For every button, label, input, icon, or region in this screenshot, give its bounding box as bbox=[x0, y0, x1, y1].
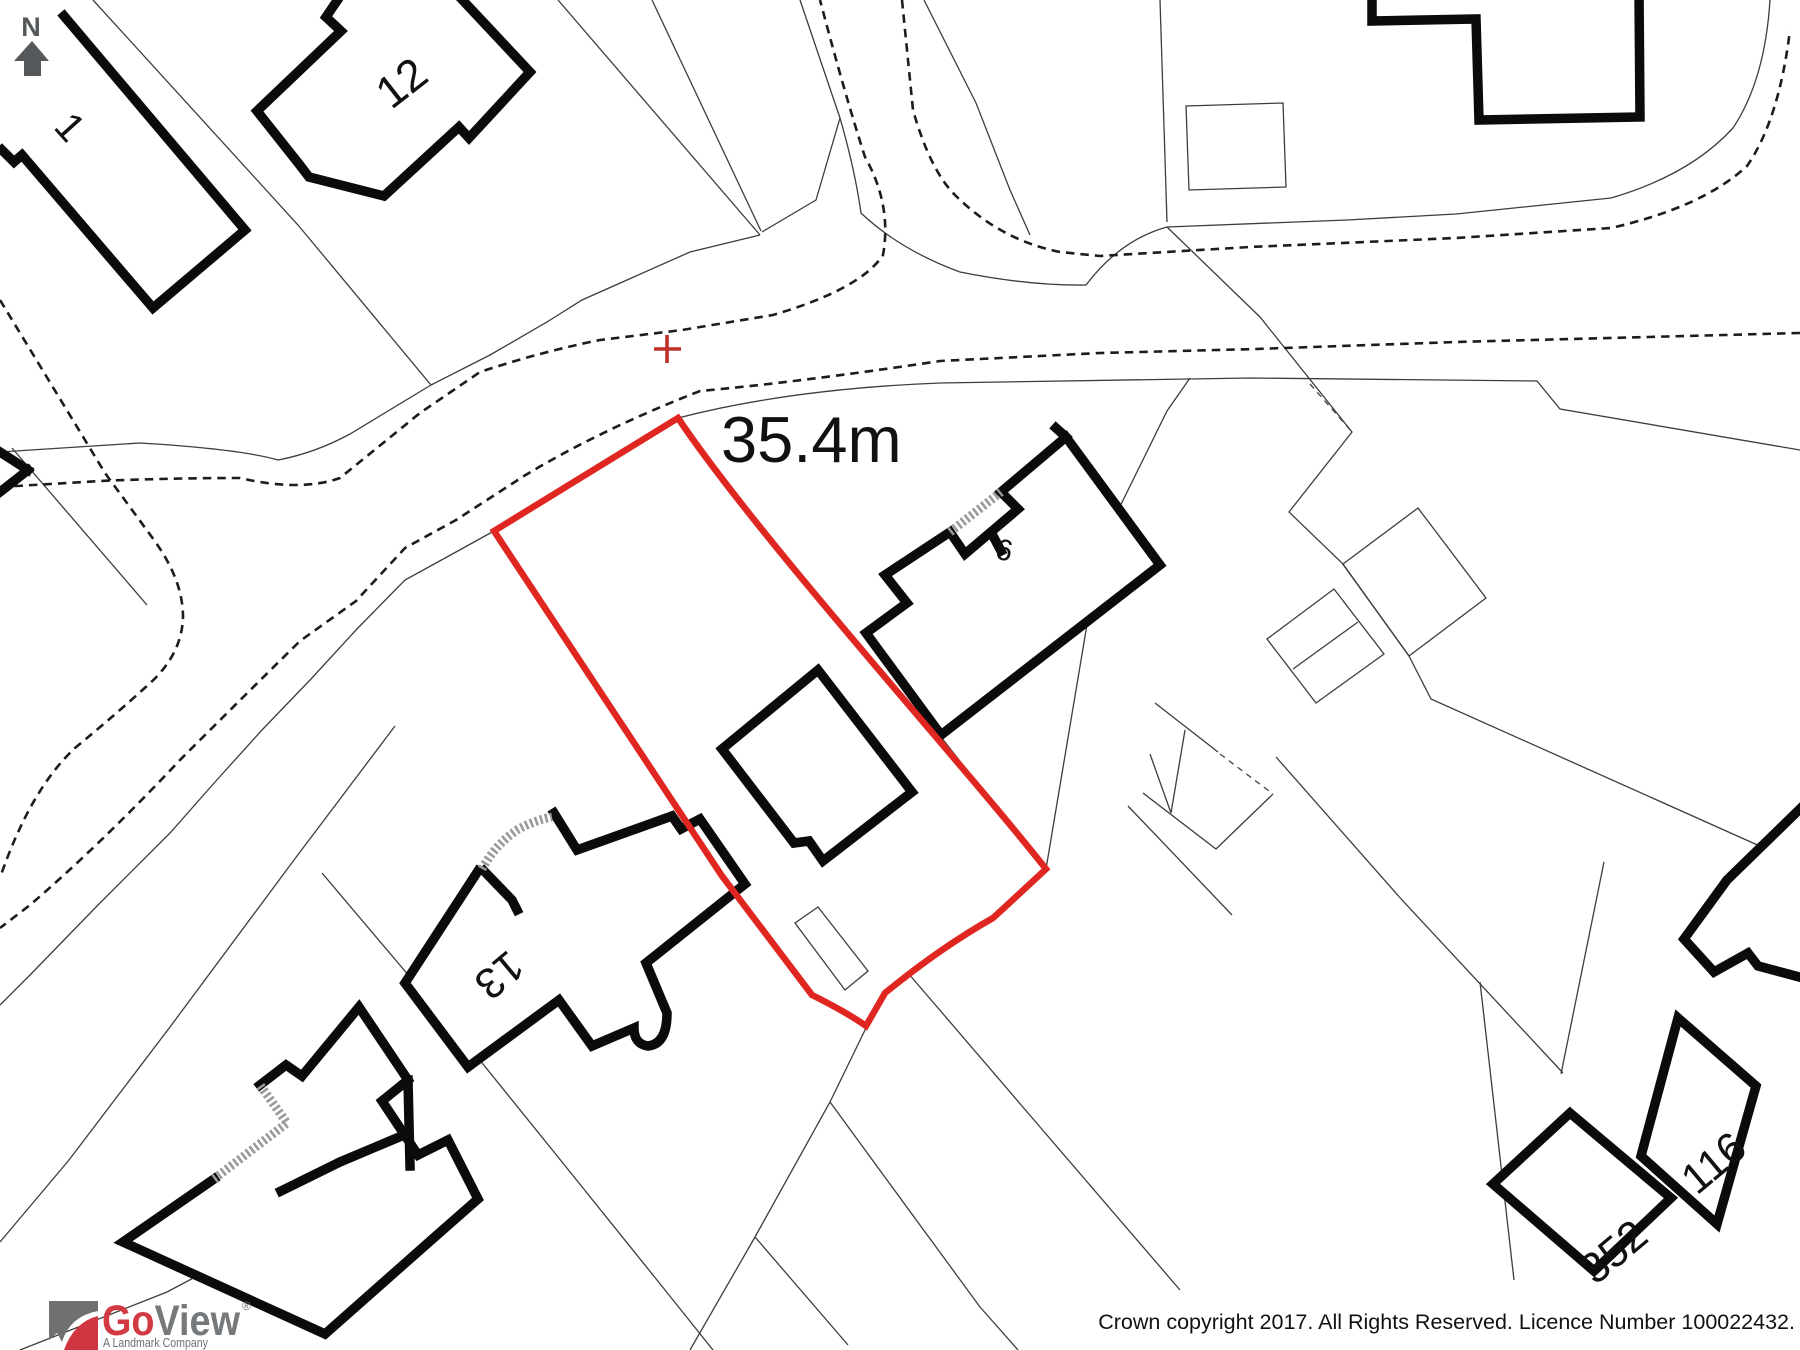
svg-text:N: N bbox=[21, 12, 41, 42]
svg-text:35.4m: 35.4m bbox=[721, 403, 902, 476]
svg-text:®: ® bbox=[242, 1299, 251, 1313]
svg-text:Crown copyright 2017. All Righ: Crown copyright 2017. All Rights Reserve… bbox=[1098, 1310, 1795, 1334]
svg-text:A Landmark Company: A Landmark Company bbox=[103, 1336, 209, 1350]
